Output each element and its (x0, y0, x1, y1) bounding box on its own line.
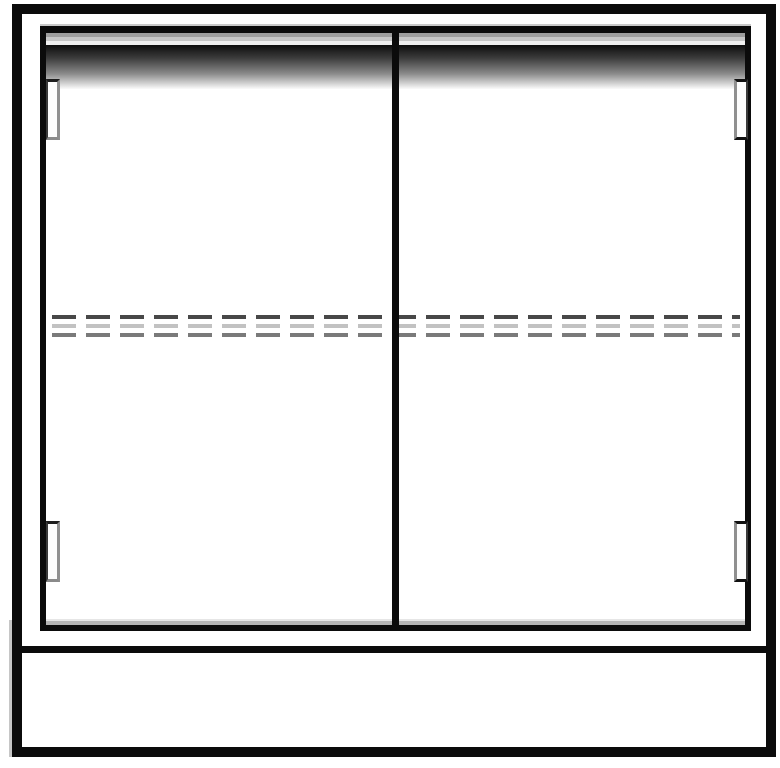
hinge-bottom-right (734, 521, 748, 582)
hinge-bottom-left (46, 521, 60, 582)
door-meeting-stile (392, 33, 399, 625)
cabinet-elevation-drawing (0, 0, 780, 768)
hinge-top-right (734, 79, 748, 140)
door-assembly (40, 26, 751, 631)
hinge-top-left (46, 79, 60, 140)
base-divider-line (22, 646, 766, 653)
base-panel (22, 653, 766, 745)
